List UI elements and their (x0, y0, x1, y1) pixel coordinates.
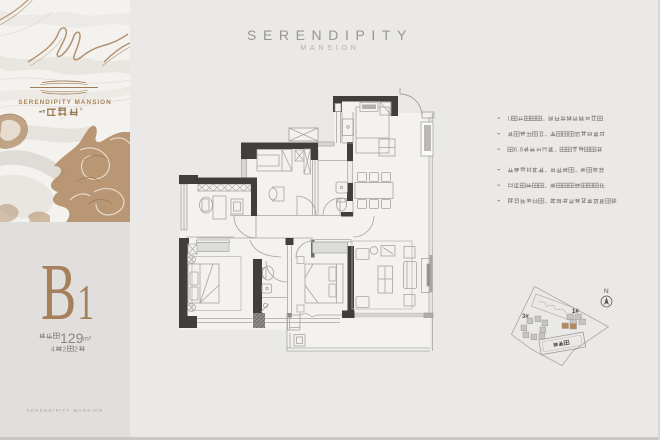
svg-text:N: N (604, 288, 609, 295)
svg-text:3#: 3# (522, 314, 529, 320)
svg-text:1#: 1# (572, 309, 579, 315)
